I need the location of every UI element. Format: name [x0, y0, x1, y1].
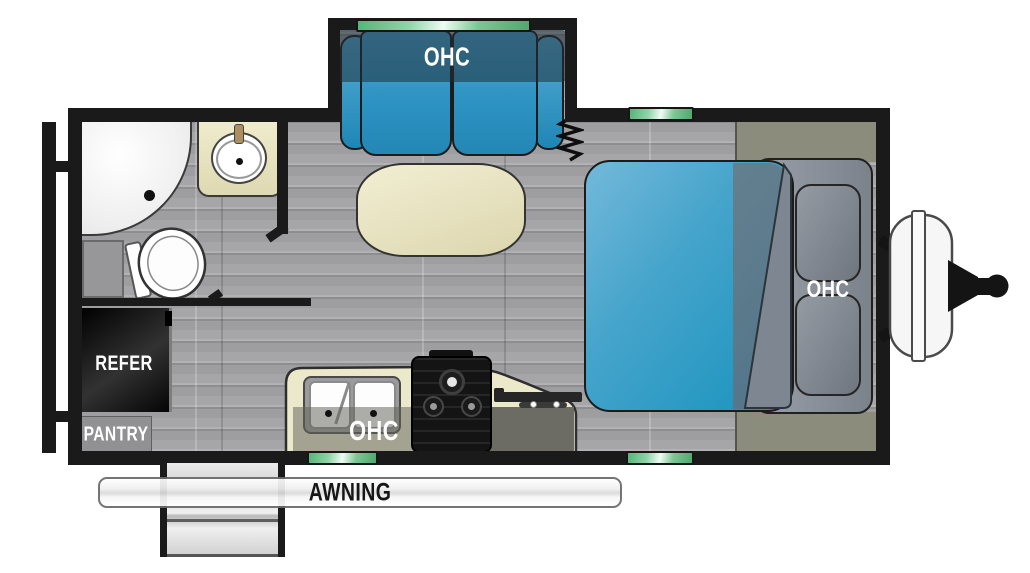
- kitchen-sink-drain-left-icon: [325, 410, 332, 417]
- wardrobe-door-bottom: [795, 294, 861, 396]
- top-wall-left: [68, 108, 333, 122]
- flip-counter: [496, 392, 582, 402]
- slideout-window: [356, 19, 531, 32]
- awning-label: AWNING: [309, 479, 392, 508]
- bathroom-bottom-wall: [82, 298, 311, 306]
- refrigerator-label: REFER: [95, 352, 152, 376]
- tongue-hitch-assembly: [878, 208, 1014, 372]
- refrigerator-handle-icon: [165, 311, 172, 326]
- slide-zigzag-icon: [556, 116, 584, 162]
- floorplan-canvas: REFER PANTRY OHC OHC OHC: [0, 0, 1030, 573]
- burner-top-center-icon: [447, 377, 457, 387]
- hitch-ball-icon: [986, 275, 1009, 298]
- bed-ohc-label: OHC: [807, 276, 850, 304]
- dinette-table: [356, 163, 526, 257]
- bathroom-right-wall: [277, 122, 288, 234]
- bed-shelf-bottom: [735, 412, 878, 451]
- slideout-right-wall: [565, 18, 577, 122]
- toilet: [124, 222, 216, 306]
- bed-blanket-fold: [738, 156, 798, 416]
- sofa-ohc-label: OHC: [424, 42, 470, 73]
- burner-right-center-icon: [468, 403, 475, 410]
- bracket-dot-left-icon: [530, 401, 537, 408]
- wardrobe-door-top: [795, 184, 861, 282]
- slideout-left-wall: [328, 18, 340, 122]
- step-divider: [167, 519, 278, 522]
- bracket-dot-right-icon: [553, 401, 560, 408]
- hitch-coupler: [948, 260, 978, 312]
- left-wall: [68, 108, 82, 465]
- bathroom-cabinet: [82, 240, 124, 298]
- kitchen-bottom-window: [307, 451, 378, 465]
- bedroom-bottom-window: [626, 451, 694, 465]
- kitchen-ohc-label: OHC: [349, 415, 399, 447]
- propane-divider: [912, 211, 925, 361]
- shower-drain-icon: [144, 190, 155, 201]
- top-wall-right: [577, 108, 890, 122]
- bathroom-sink-drain-icon: [236, 158, 243, 165]
- pantry-label: PANTRY: [84, 424, 149, 447]
- bathroom-faucet-icon: [234, 124, 244, 144]
- burner-left-center-icon: [430, 403, 437, 410]
- bedroom-top-window: [628, 107, 694, 121]
